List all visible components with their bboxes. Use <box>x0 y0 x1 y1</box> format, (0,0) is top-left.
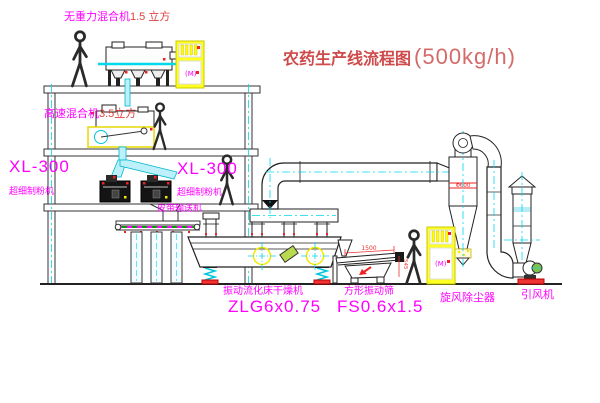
label-mill-right-model: XL-300 <box>177 160 238 177</box>
label-mill-right-name: 超细制粉机 <box>177 188 222 197</box>
process-flow-drawing: (M) <box>0 0 600 403</box>
drawing-title: 农药生产线流程图 (500kg/h) <box>283 46 516 68</box>
sieve-height-dim: 545 <box>402 259 408 270</box>
person-figure <box>154 103 166 149</box>
label-mill-left-name: 超细制粉机 <box>9 187 54 196</box>
fluid-bed-dryer <box>188 209 341 284</box>
title-capacity: (500kg/h) <box>414 46 516 68</box>
cabinet-m-label: (M) <box>435 260 447 268</box>
square-vibrating-sieve: 1500 545 <box>333 240 408 285</box>
control-cabinet-upper: (M) <box>176 41 204 88</box>
label-gravity-mixer: 无重力混合机1.5 立方 <box>64 12 170 23</box>
label-induced-fan: 引风机 <box>521 290 554 301</box>
feed-pipe <box>125 79 130 106</box>
label-sieve-model: FS0.6x1.5 <box>337 298 424 315</box>
label-cyclone: 旋风除尘器 <box>440 293 495 304</box>
induced-draft-fan <box>513 261 544 284</box>
label-dryer-name: 振动流化床干燥机 <box>223 287 303 297</box>
title-text: 农药生产线流程图 <box>283 52 411 68</box>
control-cabinet-lower: (M) <box>427 227 455 284</box>
belt-conveyor <box>115 221 200 283</box>
high-speed-mixer-spec: 3.5立方 <box>99 108 136 120</box>
label-mill-left-model: XL-300 <box>9 158 70 175</box>
gravity-mixer-spec: 1.5 立方 <box>130 11 170 23</box>
label-belt-conveyor: 皮带输送机 <box>157 204 202 213</box>
label-sieve-name: 方形振动筛 <box>344 287 394 297</box>
high-speed-mixer-name: 高速混合机 <box>44 108 99 120</box>
label-dryer-model: ZLG6x0.75 <box>228 298 321 315</box>
person-figure <box>407 231 421 283</box>
label-high-speed-mixer: 高速混合机3.5立方 <box>44 109 136 120</box>
sieve-length-dim: 1500 <box>361 245 376 252</box>
cabinet-m-label: (M) <box>185 70 197 78</box>
mill-machines <box>100 175 180 223</box>
person-figure <box>72 32 86 86</box>
gravity-mixer-name: 无重力混合机 <box>64 11 130 23</box>
gravity-mixer <box>98 42 182 86</box>
